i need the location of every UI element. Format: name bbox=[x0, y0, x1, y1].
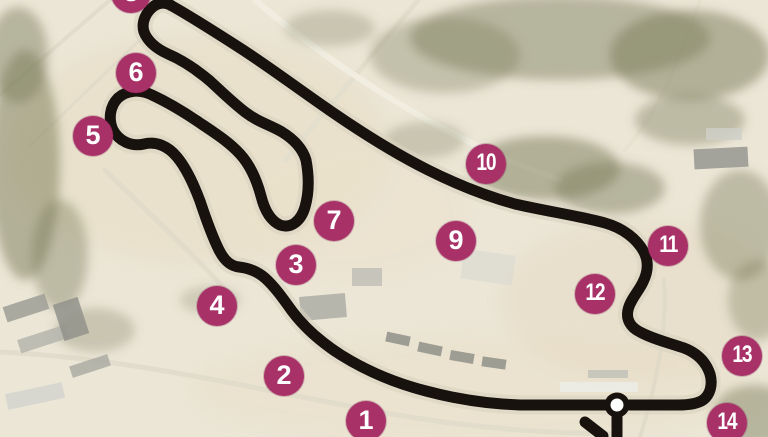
turn-badge-label: 4 bbox=[209, 292, 224, 319]
circuit-map: 1 2 3 4 5 6 7 8 9 10 11 12 13 14 bbox=[0, 0, 768, 437]
circuit-map-image bbox=[0, 0, 768, 437]
turn-badge-14: 14 bbox=[707, 403, 747, 437]
turn-badge-13: 13 bbox=[722, 336, 762, 376]
turn-badge-label: 14 bbox=[718, 410, 737, 434]
turn-badge-label: 5 bbox=[85, 122, 100, 149]
turn-badge-label: 3 bbox=[288, 251, 303, 278]
turn-badge-label: 2 bbox=[276, 362, 291, 389]
start-finish-marker bbox=[605, 393, 630, 418]
turn-badge-3: 3 bbox=[276, 245, 316, 285]
turn-badge-11: 11 bbox=[648, 226, 688, 266]
turn-badge-label: 1 bbox=[358, 407, 373, 434]
turn-badge-label: 11 bbox=[659, 233, 677, 257]
turn-badge-label: 6 bbox=[128, 59, 143, 86]
turn-badge-4: 4 bbox=[197, 286, 237, 326]
turn-badge-10: 10 bbox=[466, 144, 506, 184]
turn-badge-12: 12 bbox=[575, 274, 615, 314]
turn-badge-label: 10 bbox=[477, 151, 496, 175]
turn-badge-label: 9 bbox=[448, 227, 463, 254]
turn-badge-7: 7 bbox=[314, 201, 354, 241]
turn-badge-9: 9 bbox=[436, 221, 476, 261]
turn-badge-label: 13 bbox=[733, 343, 752, 367]
turn-badge-label: 12 bbox=[586, 281, 605, 305]
turn-badge-5: 5 bbox=[73, 116, 113, 156]
turn-badge-2: 2 bbox=[264, 356, 304, 396]
turn-badge-label: 7 bbox=[326, 207, 341, 234]
turn-badge-6: 6 bbox=[116, 53, 156, 93]
turn-badge-label: 8 bbox=[123, 0, 138, 6]
turn-badge-1: 1 bbox=[346, 401, 386, 437]
